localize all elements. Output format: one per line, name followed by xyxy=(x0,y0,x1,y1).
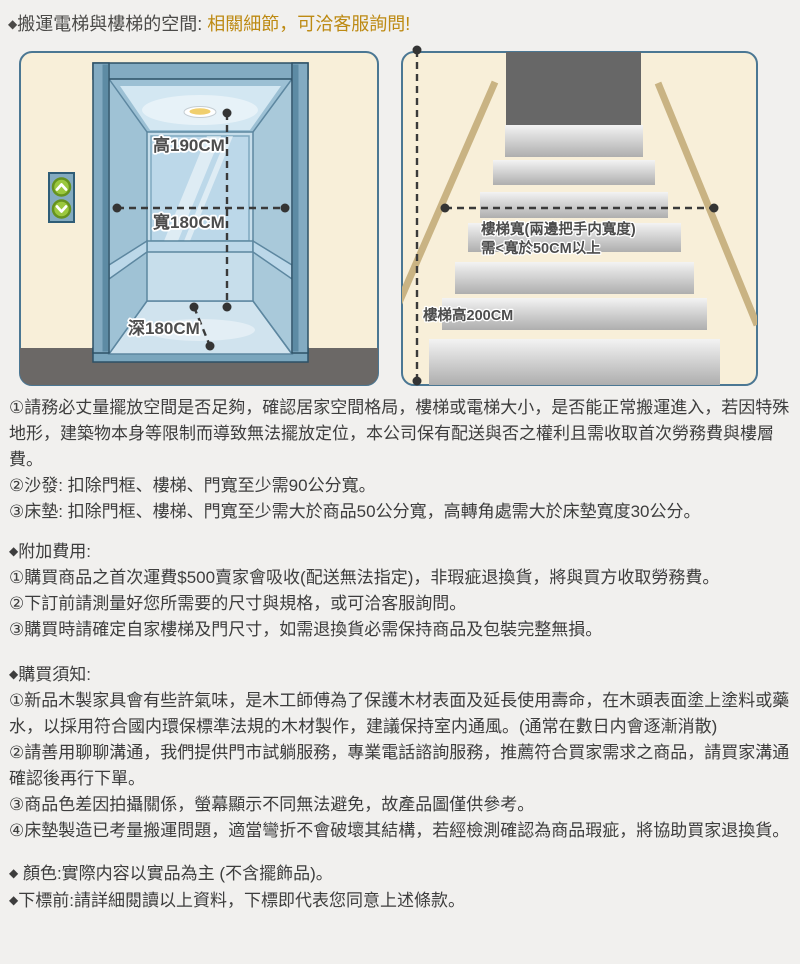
purchase-notes-heading-text: 購買須知: xyxy=(18,665,91,684)
additional-fee-2: ②下訂前請測量好您所需要的尺寸與規格，或可洽客服詢問。 xyxy=(9,591,794,617)
diamond-bullet-icon: ◆ xyxy=(8,17,17,31)
page-title: ◆搬運電梯與樓梯的空間: 相關細節，可洽客服詢問! xyxy=(8,12,410,36)
stairs-dimensions-panel: 樓梯寬(兩邊把手内寬度) 需<寬於50CM以上 樓梯高200CM xyxy=(396,44,763,393)
additional-fees-heading: ◆附加費用: xyxy=(9,538,794,565)
stairs-height-label: 樓梯高200CM xyxy=(423,306,513,324)
footer-color-note: ◆ 顏色:實際内容以實品為主 (不含擺飾品)。 xyxy=(9,860,794,887)
down-button-icon xyxy=(53,201,70,218)
purchase-note-3: ③商品色差因拍攝關係，螢幕顯示不同無法避免，故產品圖僅供參考。 xyxy=(9,792,794,818)
purchase-note-1: ①新品木製家具會有些許氣味，是木工師傅為了保護木材表面及延長使用壽命，在木頭表面… xyxy=(9,688,794,740)
elevator-depth-label: 深180CM xyxy=(128,318,200,338)
call-button-panel xyxy=(49,173,74,222)
footer-agreement-note-text: 下標前:請詳細閱讀以上資料，下標即代表您同意上述條款。 xyxy=(18,891,465,910)
purchase-note-2: ②請善用聊聊溝通，我們提供門市試躺服務，專業電話諮詢服務，推薦符合買家需求之商品… xyxy=(9,740,794,792)
additional-fee-1: ①購買商品之首次運費$500賣家會吸收(配送無法指定)，非瑕疵退換貨，將與買方收… xyxy=(9,565,794,591)
measurement-notes-section: ①請務必丈量擺放空間是否足夠，確認居家空間格局，樓梯或電梯大小，是否能正常搬運進… xyxy=(9,395,794,525)
elevator-height-label: 高190CM xyxy=(153,135,225,155)
additional-fees-heading-text: 附加費用: xyxy=(18,542,91,561)
stairs-width-note-line2: 需<寬於50CM以上 xyxy=(481,239,601,257)
measurement-note-3: ③床墊: 扣除門框、樓梯、門寬至少需大於商品50公分寬，高轉角處需大於床墊寬度3… xyxy=(9,499,794,525)
notice-text-column: ①請務必丈量擺放空間是否足夠，確認居家空間格局，樓梯或電梯大小，是否能正常搬運進… xyxy=(9,395,794,914)
additional-fee-3: ③購買時請確定自家樓梯及門尺寸，如需退換貨必需保持商品及包裝完整無損。 xyxy=(9,617,794,643)
title-highlight-text: 相關細節，可洽客服詢問! xyxy=(207,14,410,34)
ceiling-lamp-bulb xyxy=(190,108,211,114)
measurement-note-1: ①請務必丈量擺放空間是否足夠，確認居家空間格局，樓梯或電梯大小，是否能正常搬運進… xyxy=(9,395,794,473)
up-button-icon xyxy=(53,179,70,196)
elevator-width-label: 寬180CM xyxy=(152,212,225,232)
purchase-notes-section: ◆購買須知: ①新品木製家具會有些許氣味，是木工師傅為了保護木材表面及延長使用壽… xyxy=(9,661,794,844)
diamond-bullet-icon: ◆ xyxy=(9,866,18,880)
stair-doorway xyxy=(506,52,641,125)
elevator-dimensions-panel: 高190CM 寬180CM 深180CM xyxy=(14,46,384,391)
measurement-note-2: ②沙發: 扣除門框、樓梯、門寬至少需90公分寬。 xyxy=(9,473,794,499)
diamond-bullet-icon: ◆ xyxy=(9,667,18,681)
additional-fees-section: ◆附加費用: ①購買商品之首次運費$500賣家會吸收(配送無法指定)，非瑕疵退換… xyxy=(9,538,794,643)
footer-color-note-text: 顏色:實際内容以實品為主 (不含擺飾品)。 xyxy=(18,864,333,883)
door-lintel xyxy=(93,63,308,79)
footer-agreement-note: ◆下標前:請詳細閱讀以上資料，下標即代表您同意上述條款。 xyxy=(9,887,794,914)
product-notice-page: ◆搬運電梯與樓梯的空間: 相關細節，可洽客服詢問! xyxy=(0,0,800,964)
title-text: 搬運電梯與樓梯的空間: xyxy=(17,14,207,34)
diamond-bullet-icon: ◆ xyxy=(9,893,18,907)
footer-notes-section: ◆ 顏色:實際内容以實品為主 (不含擺飾品)。 ◆下標前:請詳細閱讀以上資料，下… xyxy=(9,860,794,914)
purchase-note-4: ④床墊製造已考量搬運問題，適當彎折不會破壞其結構，若經檢測確認為商品瑕疵，將協助… xyxy=(9,818,794,844)
diamond-bullet-icon: ◆ xyxy=(9,544,18,558)
stairs-width-note-line1: 樓梯寬(兩邊把手内寬度) xyxy=(481,220,636,238)
purchase-notes-heading: ◆購買須知: xyxy=(9,661,794,688)
